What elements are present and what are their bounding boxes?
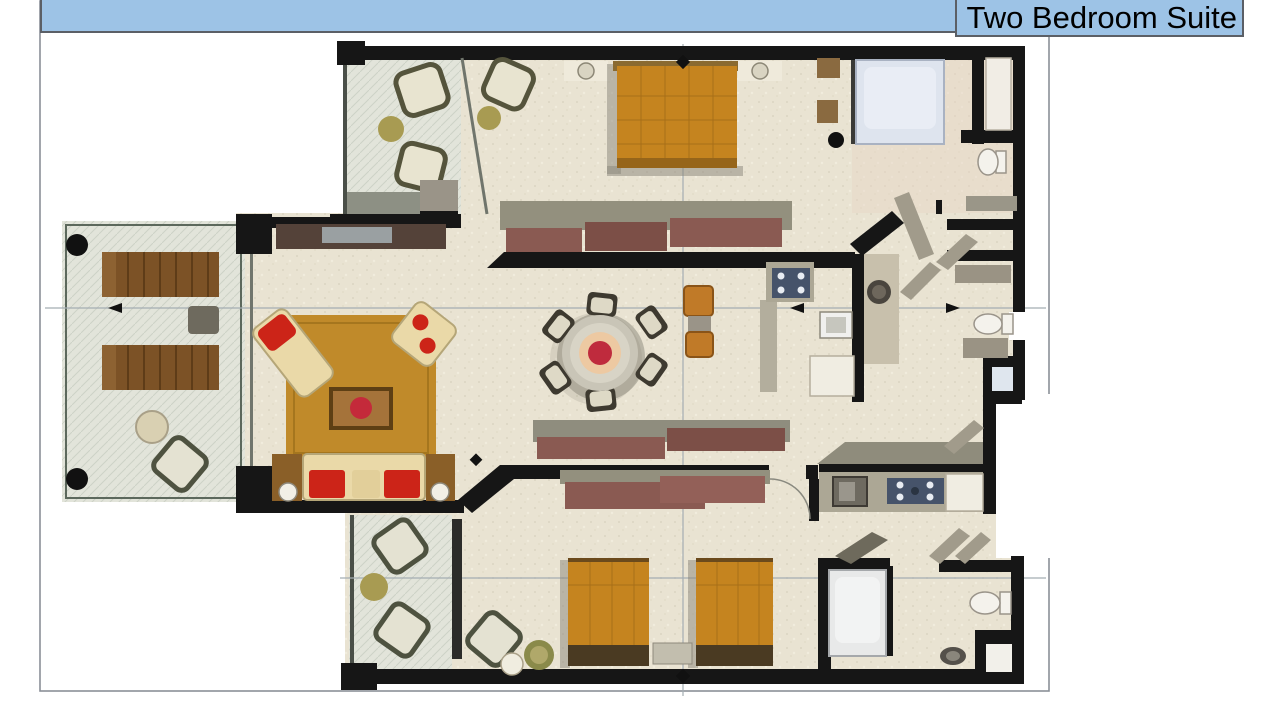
svg-text:Two Bedroom Suite: Two Bedroom Suite bbox=[966, 0, 1237, 35]
